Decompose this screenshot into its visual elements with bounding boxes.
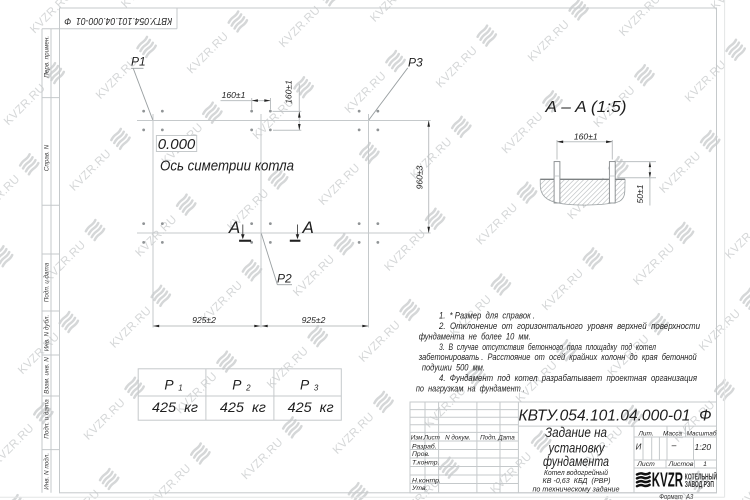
svg-text:KVZR: KVZR (652, 468, 683, 491)
svg-text:KVZR.RU: KVZR.RU (631, 241, 678, 288)
svg-text:1: 1 (703, 461, 707, 468)
svg-text:KVZR.RU: KVZR.RU (147, 462, 194, 500)
svg-text:Пров.: Пров. (412, 451, 430, 458)
svg-text:Инв. N дубл.: Инв. N дубл. (42, 315, 50, 351)
svg-text:A: A (228, 218, 240, 237)
svg-text:KVZR.RU: KVZR.RU (488, 450, 535, 497)
svg-text:KVZR.RU: KVZR.RU (15, 330, 62, 377)
svg-text:925±2: 925±2 (192, 315, 216, 325)
svg-text:KVZR.RU: KVZR.RU (56, 487, 103, 500)
svg-text:Подп. и дата: Подп. и дата (42, 399, 50, 439)
svg-text:по техническому задание: по техническому задание (533, 484, 620, 493)
svg-text:50±1: 50±1 (635, 184, 645, 203)
svg-text:2. Отклонение от горизонтал: 2. Отклонение от горизонтального уровня … (438, 321, 700, 331)
svg-text:P: P (232, 378, 242, 393)
svg-text:1: 1 (178, 384, 182, 393)
svg-text:Подп.: Подп. (480, 434, 497, 442)
svg-text:KVZR.RU: KVZR.RU (525, 18, 572, 65)
svg-text:Масса: Масса (663, 431, 682, 438)
svg-text:KVZR.RU: KVZR.RU (708, 0, 750, 13)
svg-text:подушки 500 мм.: подушки 500 мм. (422, 363, 485, 373)
svg-text:Ось симетрии котла: Ось симетрии котла (160, 159, 294, 175)
svg-text:KVZR.RU: KVZR.RU (657, 149, 704, 196)
svg-text:Т.контр.: Т.контр. (412, 459, 440, 466)
svg-text:KVZR.RU: KVZR.RU (696, 307, 743, 354)
svg-text:KVZR.RU: KVZR.RU (682, 58, 729, 105)
svg-text:Утв.: Утв. (411, 485, 428, 492)
svg-text:Н.контр.: Н.контр. (412, 477, 441, 484)
svg-text:Взам. инв. N: Взам. инв. N (43, 357, 50, 394)
svg-text:A – A (1:5): A – A (1:5) (544, 99, 626, 116)
svg-text:160±1: 160±1 (284, 80, 294, 104)
svg-text:4. Фундамент под котел раз: 4. Фундамент под котел разрабатывает про… (439, 373, 697, 383)
svg-text:KVZR.RU: KVZR.RU (276, 3, 323, 50)
svg-text:N докум.: N докум. (445, 434, 470, 442)
svg-text:ЗАВОД РЭП: ЗАВОД РЭП (685, 481, 714, 489)
svg-text:KVZR.RU: KVZR.RU (330, 410, 377, 457)
svg-text:960±3: 960±3 (414, 165, 424, 189)
svg-text:160±1: 160±1 (222, 90, 246, 100)
svg-text:KVZR.RU: KVZR.RU (617, 0, 664, 39)
svg-text:Масштаб: Масштаб (687, 430, 717, 438)
svg-text:Разраб.: Разраб. (412, 442, 437, 450)
svg-text:Справ. N: Справ. N (43, 144, 50, 171)
svg-text:КВТУ.054.101.04.000-01 Ф: КВТУ.054.101.04.000-01 Ф (64, 15, 172, 27)
svg-text:KVZR.RU: KVZR.RU (67, 147, 114, 194)
svg-text:KVZR.RU: KVZR.RU (433, 44, 480, 91)
svg-text:P: P (164, 378, 174, 393)
svg-text:KVZR.RU: KVZR.RU (1, 81, 48, 128)
svg-text:P2: P2 (277, 272, 292, 286)
svg-text:KVZR.RU: KVZR.RU (81, 396, 128, 443)
svg-text:KVZR.RU: KVZR.RU (119, 0, 166, 11)
svg-text:1:20: 1:20 (695, 442, 712, 452)
svg-text:425 кг: 425 кг (288, 400, 334, 415)
svg-text:P1: P1 (131, 55, 146, 69)
svg-text:KVZR.RU: KVZR.RU (291, 252, 338, 299)
svg-text:KVZR.RU: KVZR.RU (499, 110, 546, 157)
svg-text:KVZR.RU: KVZR.RU (474, 201, 521, 248)
svg-text:KVZR.RU: KVZR.RU (316, 161, 363, 208)
svg-text:925±2: 925±2 (302, 315, 326, 325)
svg-text:160±1: 160±1 (574, 131, 598, 141)
svg-text:Изм.: Изм. (411, 435, 424, 442)
svg-text:Дата: Дата (497, 435, 515, 442)
svg-text:KVZR.RU: KVZR.RU (0, 172, 23, 219)
svg-text:–: – (671, 440, 677, 450)
svg-text:KVZR.RU: KVZR.RU (382, 227, 429, 274)
svg-text:0.000: 0.000 (158, 136, 196, 153)
svg-text:1. * Размер для справок .: 1. * Размер для справок . (439, 311, 535, 321)
svg-text:3: 3 (314, 384, 319, 393)
svg-text:фундамента: фундамента (543, 453, 609, 469)
svg-text:KVZR.RU: KVZR.RU (239, 436, 286, 483)
svg-text:Задание на: Задание на (545, 424, 607, 440)
svg-text:KVZR.RU: KVZR.RU (723, 215, 750, 262)
svg-text:И: И (636, 442, 642, 451)
svg-text:Лит.: Лит. (638, 431, 654, 438)
svg-text:Формат А3: Формат А3 (659, 492, 694, 500)
svg-text:425 кг: 425 кг (152, 400, 198, 415)
svg-text:KVZR.RU: KVZR.RU (368, 0, 415, 25)
svg-text:A: A (302, 218, 314, 237)
svg-text:P3: P3 (408, 56, 423, 70)
svg-text:KVZR.RU: KVZR.RU (737, 464, 750, 500)
svg-text:по нагрузкам на фундамент .: по нагрузкам на фундамент . (416, 383, 525, 393)
svg-text:3. В случае отсутствия бет: 3. В случае отсутствия бетонного пола пл… (439, 342, 657, 352)
svg-text:KVZR.RU: KVZR.RU (133, 213, 180, 260)
svg-text:2: 2 (245, 384, 251, 393)
svg-text:Инв. N подл.: Инв. N подл. (42, 453, 50, 490)
svg-text:KVZR.RU: KVZR.RU (184, 30, 231, 77)
svg-text:KVZR.RU: KVZR.RU (0, 421, 37, 468)
svg-text:P: P (300, 378, 310, 393)
svg-text:KVZR.RU: KVZR.RU (342, 69, 389, 116)
svg-text:фундамента не более 10 мм.: фундамента не более 10 мм. (419, 331, 531, 341)
svg-text:KVZR.RU: KVZR.RU (107, 304, 154, 351)
svg-text:KVZR.RU: KVZR.RU (539, 267, 586, 314)
svg-text:Подп. и дата: Подп. и дата (42, 262, 50, 302)
svg-text:Перв. примен.: Перв. примен. (43, 36, 50, 78)
svg-text:Лист: Лист (423, 435, 440, 442)
svg-text:425 кг: 425 кг (220, 400, 266, 415)
svg-text:забетонировать . Расстояние: забетонировать . Расстояние от осей край… (418, 352, 697, 362)
svg-text:КВТУ.054.101.04.000-01 Ф: КВТУ.054.101.04.000-01 Ф (519, 407, 712, 424)
